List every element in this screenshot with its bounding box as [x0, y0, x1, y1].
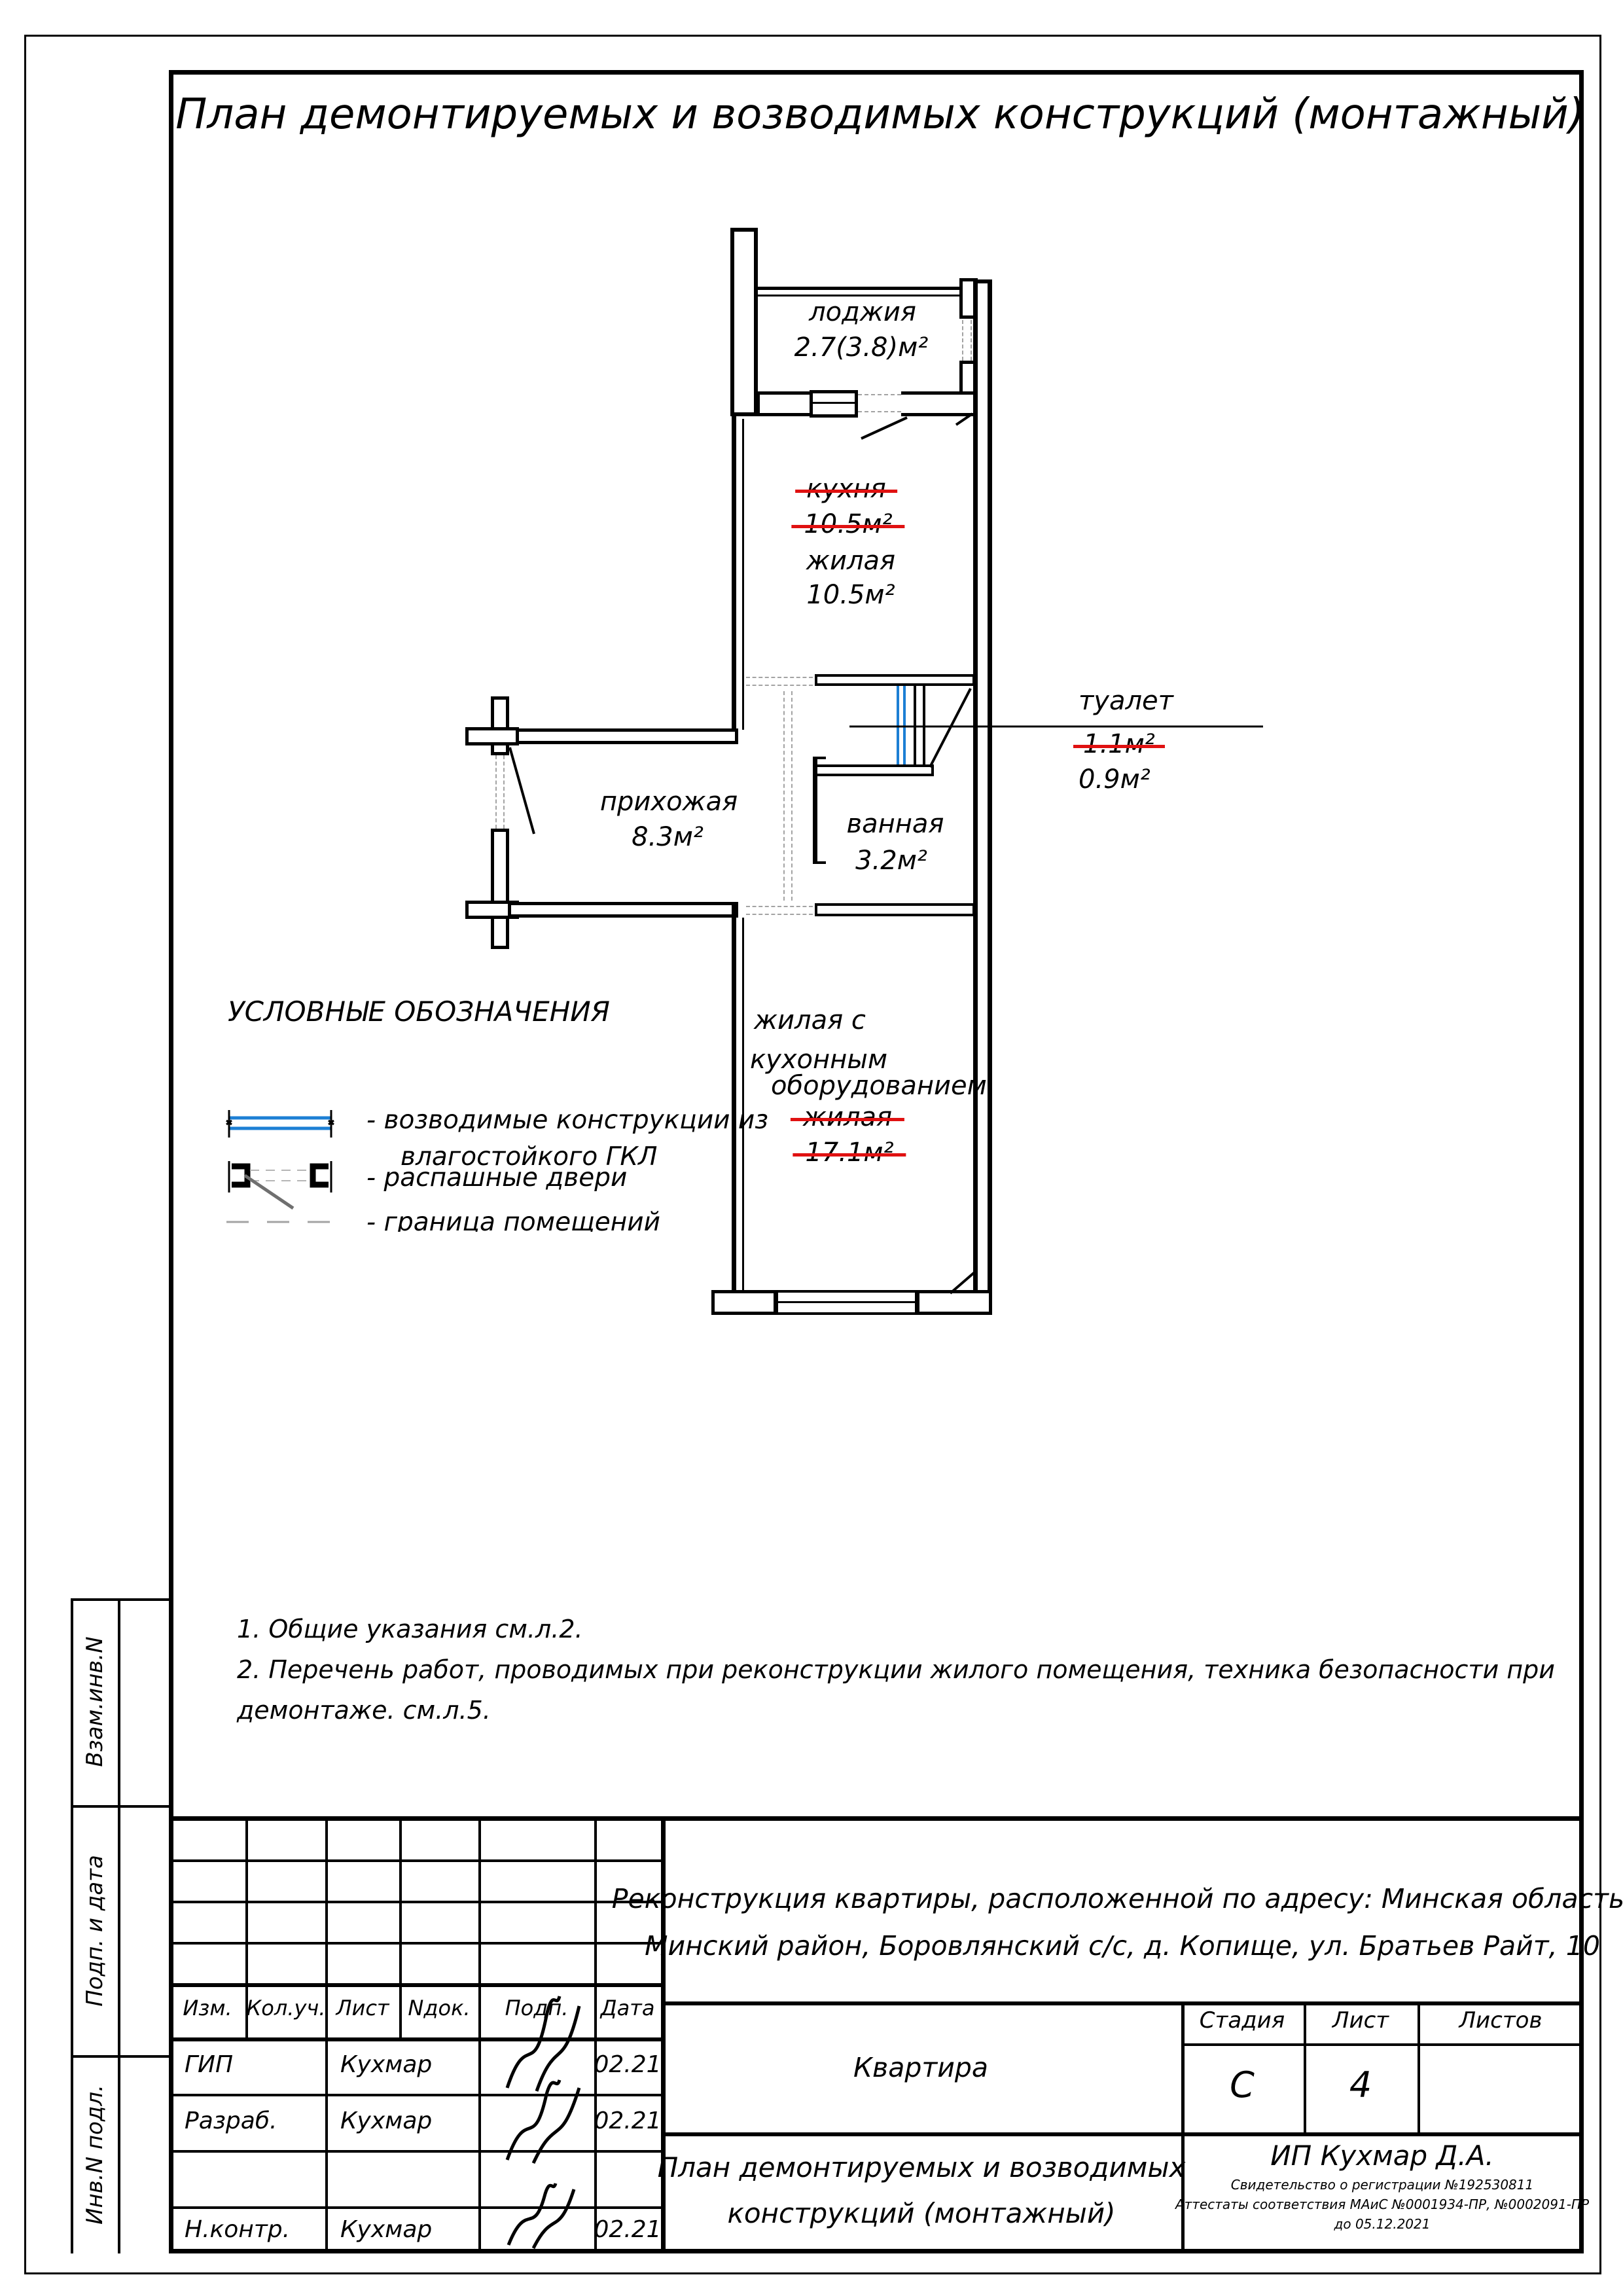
- col-koluch: Кол.уч.: [247, 1998, 326, 2020]
- titleblock-line: [661, 1816, 666, 2253]
- object-name: Квартира: [853, 2054, 988, 2082]
- titleblock-line: [1181, 2001, 1185, 2253]
- signature-razrab: [497, 2075, 596, 2166]
- room-area-living-kitchen-old: 17.1м²: [805, 1139, 893, 1166]
- room-area-toilet-old: 1.1м²: [1083, 730, 1155, 758]
- room-area-loggia: 2.7(3.8)м²: [794, 334, 929, 361]
- legend-symbol-room-boundary: [221, 1219, 339, 1225]
- room-label-living-kitchen-2: кухонным: [750, 1046, 887, 1073]
- room-label-hallway: прихожая: [600, 788, 738, 816]
- room-label-living-new: жилая: [806, 547, 895, 575]
- titleblock-line: [169, 1942, 661, 1945]
- titleblock-line: [169, 1901, 661, 1903]
- stage-label: Стадия: [1200, 2009, 1285, 2033]
- row-nkontr-date: 02.21: [594, 2217, 661, 2242]
- sheet-label: Лист: [1332, 2009, 1389, 2033]
- sidebar-label-podp-data: Подп. и дата: [84, 1855, 107, 2007]
- room-label-living-kitchen-1: жилая с: [754, 1007, 866, 1034]
- room-label-bathroom: ванная: [847, 810, 944, 838]
- sidebar-line: [71, 2055, 169, 2058]
- corner-mark: [950, 1272, 974, 1293]
- sidebar-line: [71, 1598, 73, 2253]
- company-name: ИП Кухмар Д.А.: [1270, 2142, 1494, 2170]
- titleblock-line: [169, 1983, 661, 1987]
- balcony-door-swing: [861, 418, 907, 439]
- col-izm: Изм.: [183, 1998, 232, 2020]
- room-area-toilet-new: 0.9м²: [1079, 766, 1150, 793]
- corner-mark: [956, 414, 972, 425]
- room-label-loggia: лоджия: [809, 298, 916, 326]
- titleblock-line: [478, 1816, 481, 2253]
- row-nkontr-role: Н.контр.: [185, 2217, 290, 2242]
- toilet-door-swing: [930, 689, 971, 767]
- titleblock-line: [399, 1816, 402, 2041]
- legend-symbol-swing-doors: [221, 1160, 339, 1211]
- col-ndok: Nдок.: [408, 1998, 470, 2020]
- legend-label-room-boundary: - граница помещений: [366, 1210, 660, 1232]
- room-label-living-kitchen-old: жилая: [803, 1103, 892, 1131]
- sheets-label: Листов: [1459, 2009, 1542, 2033]
- sheet-value: 4: [1349, 2067, 1372, 2104]
- legend-symbol-new-construction: [221, 1109, 339, 1139]
- room-area-bathroom: 3.2м²: [855, 847, 927, 874]
- room-label-kitchen-old: кухня: [806, 475, 886, 503]
- note-line: 1. Общие указания см.л.2.: [237, 1617, 583, 1643]
- project-address-1: Реконструкция квартиры, расположенной по…: [612, 1885, 1623, 1913]
- room-area-kitchen-old: 10.5м²: [804, 511, 892, 538]
- stage-value: С: [1230, 2067, 1255, 2104]
- entrance-door-swing: [510, 747, 534, 834]
- titleblock-line: [169, 1859, 661, 1862]
- titleblock-line: [169, 1816, 1584, 1821]
- titleblock-line: [325, 1816, 328, 2253]
- room-label-toilet: туалет: [1079, 687, 1173, 715]
- titleblock-line: [1418, 2001, 1420, 2136]
- room-area-living-new: 10.5м²: [806, 581, 895, 609]
- company-cert-1: Свидетельство о регистрации №192530811: [1231, 2178, 1533, 2192]
- row-razrab-date: 02.21: [594, 2109, 661, 2134]
- legend-label-swing-doors: - распашные двери: [366, 1165, 627, 1192]
- titleblock-line: [1181, 2043, 1584, 2046]
- sidebar-line: [118, 1598, 120, 2253]
- doc-name-1: План демонтируемых и возводимых: [658, 2153, 1186, 2182]
- room-area-hallway: 8.3м²: [632, 823, 704, 851]
- doc-name-2: конструкций (монтажный): [727, 2199, 1115, 2228]
- row-razrab-role: Разраб.: [185, 2109, 277, 2134]
- row-gip-date: 02.21: [594, 2053, 661, 2077]
- legend-label-new-construction-1: - возводимые конструкции из: [366, 1107, 768, 1134]
- project-address-2: Минский район, Боровлянский с/с, д. Копи…: [645, 1932, 1600, 1960]
- row-gip-role: ГИП: [185, 2053, 233, 2077]
- row-nkontr-name: Кухмар: [340, 2217, 432, 2242]
- titleblock-line: [661, 2132, 1584, 2136]
- company-cert-3: до 05.12.2021: [1334, 2217, 1431, 2231]
- room-label-living-kitchen-3: оборудованием: [771, 1072, 987, 1100]
- sidebar-line: [71, 1805, 169, 1808]
- sidebar-line: [71, 1598, 169, 1601]
- row-gip-name: Кухмар: [340, 2053, 432, 2077]
- note-line: демонтаже. см.л.5.: [237, 1698, 491, 1724]
- row-razrab-name: Кухмар: [340, 2109, 432, 2134]
- sidebar-label-vzam: Взам.инв.N: [84, 1636, 107, 1767]
- note-line: 2. Перечень работ, проводимых при реконс…: [237, 1657, 1555, 1683]
- col-list: Лист: [336, 1998, 389, 2020]
- col-data: Дата: [601, 1998, 655, 2020]
- signature-nkontr: [501, 2179, 592, 2251]
- sidebar-label-inv: Инв.N подл.: [84, 2085, 107, 2225]
- titleblock-line: [661, 2001, 1584, 2005]
- company-cert-2: Аттестаты соответствия МАиС №0001934-ПР,…: [1175, 2198, 1589, 2212]
- drawing-sheet: План демонтируемых и возводимых конструк…: [0, 0, 1623, 2296]
- legend-header: УСЛОВНЫЕ ОБОЗНАЧЕНИЯ: [228, 997, 610, 1026]
- titleblock-line: [1304, 2001, 1306, 2136]
